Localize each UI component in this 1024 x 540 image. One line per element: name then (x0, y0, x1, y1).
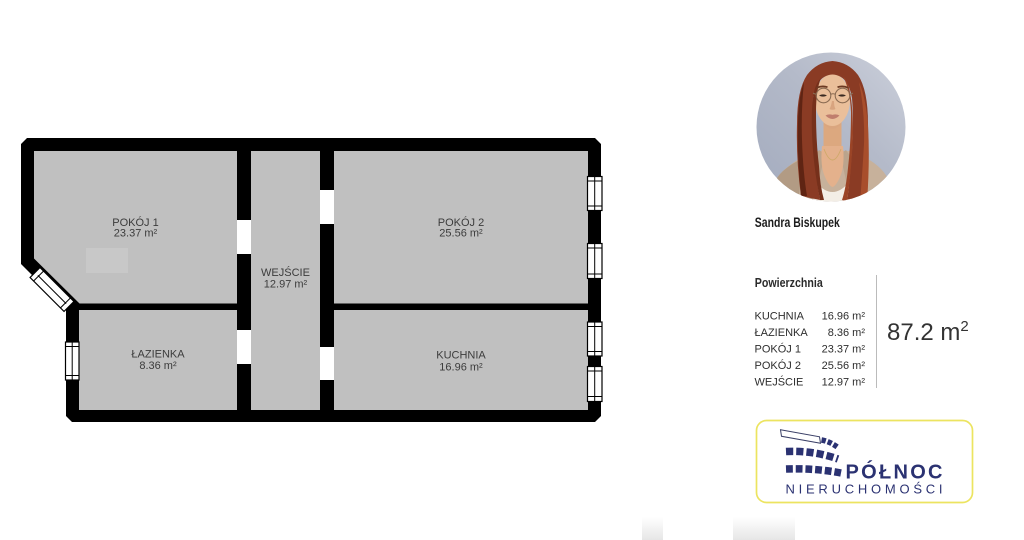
svg-text:25.56 m²: 25.56 m² (439, 228, 483, 240)
svg-text:KUCHNIA: KUCHNIA (436, 350, 486, 362)
svg-text:Sandra Biskupek: Sandra Biskupek (755, 215, 840, 230)
svg-text:16.96 m²: 16.96 m² (439, 362, 483, 374)
svg-text:POKÓJ 1: POKÓJ 1 (755, 343, 801, 356)
svg-text:87.2 m2: 87.2 m2 (887, 318, 969, 346)
svg-text:NIERUCHOMOŚCI: NIERUCHOMOŚCI (786, 482, 943, 497)
svg-text:Powierzchnia: Powierzchnia (755, 276, 824, 290)
svg-text:WEJŚCIE: WEJŚCIE (755, 376, 804, 389)
svg-text:ŁAZIENKA: ŁAZIENKA (131, 349, 185, 361)
svg-text:8.36 m²: 8.36 m² (139, 360, 177, 372)
svg-text:8.36 m²: 8.36 m² (828, 327, 866, 339)
svg-text:POKÓJ 2: POKÓJ 2 (755, 359, 801, 372)
svg-text:12.97 m²: 12.97 m² (264, 279, 308, 291)
svg-text:ŁAZIENKA: ŁAZIENKA (755, 327, 809, 339)
svg-text:23.37 m²: 23.37 m² (114, 228, 158, 240)
svg-text:25.56 m²: 25.56 m² (822, 360, 866, 372)
svg-text:16.96 m²: 16.96 m² (822, 311, 866, 323)
svg-text:12.97 m²: 12.97 m² (822, 377, 866, 389)
svg-text:23.37 m²: 23.37 m² (822, 344, 866, 356)
svg-text:WEJŚCIE: WEJŚCIE (261, 266, 310, 279)
svg-text:KUCHNIA: KUCHNIA (755, 311, 805, 323)
